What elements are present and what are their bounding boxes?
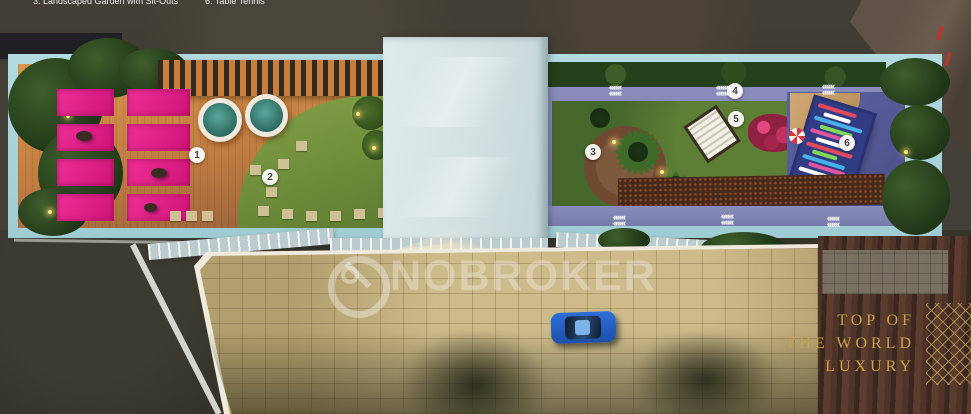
play-pinwheel [789, 128, 805, 144]
garden-light [356, 112, 360, 116]
track-chevron-icon: «««««« [827, 215, 839, 227]
palm-core [628, 142, 648, 162]
sitout-mat [127, 89, 190, 116]
tagline-line: LUXURY [700, 355, 915, 378]
tagline-line: THE WORLD [700, 332, 915, 355]
garden-light [48, 210, 52, 214]
stepping-stone [186, 211, 197, 221]
pergola [158, 60, 392, 96]
daybed-chair [198, 98, 242, 142]
amenity-marker-1: 1 [189, 147, 205, 163]
car-roof [575, 320, 591, 336]
roof-highlight [383, 57, 548, 127]
right-tree-cluster [852, 50, 952, 235]
stepping-stone [250, 165, 261, 175]
legend-item: 3. Landscaped Garden with Sit-Outs [33, 0, 178, 6]
tagline-line: TOP OF [700, 309, 915, 332]
amenity-marker-5: 5 [728, 111, 744, 127]
adjacent-walkway [822, 250, 948, 294]
watermark-brand: NOBROKER [390, 252, 657, 301]
garden-light [612, 140, 616, 144]
nobroker-logo-key-icon [328, 256, 390, 318]
stepping-stone [202, 211, 213, 221]
tagline: TOP OFTHE WORLDLUXURY [700, 309, 915, 378]
person-lounging [76, 131, 92, 141]
sitout-mat [57, 194, 114, 221]
palm-core [590, 108, 610, 128]
garden-light [660, 170, 664, 174]
person-lounging [144, 203, 157, 212]
track-chevron-icon: «««««« [609, 84, 621, 96]
building-roof [383, 37, 548, 244]
sitout-mat [57, 89, 114, 116]
garden-light [372, 146, 376, 150]
amenity-marker-3: 3 [585, 144, 601, 160]
tree-icon [882, 160, 950, 235]
garden-light [904, 150, 908, 154]
tree-icon [890, 105, 950, 160]
gravel-mat [618, 174, 886, 210]
stepping-stone [354, 209, 365, 219]
gold-lattice-pattern [926, 303, 971, 385]
stepping-stone [258, 206, 269, 216]
track-chevron-icon: «««««« [613, 214, 625, 226]
track-chevron-icon: «««««« [822, 83, 834, 95]
stepping-stone [330, 211, 341, 221]
daybed-chair [245, 94, 288, 137]
amenity-marker-4: 4 [727, 83, 743, 99]
roof-highlight [383, 157, 548, 217]
sitout-mat [127, 124, 190, 151]
track-chevron-icon: «««««« [721, 213, 733, 225]
sitout-mat [57, 159, 114, 186]
stepping-stone [282, 209, 293, 219]
track-chevron-icon: «««««« [716, 84, 728, 96]
rooftop-amenity-plan: NOBROKER TOP OFTHE WORLDLUXURY 123456 ««… [0, 0, 971, 414]
legend-item: 6. Table Tennis [205, 0, 265, 6]
stepping-stone [306, 211, 317, 221]
amenity-marker-2: 2 [262, 169, 278, 185]
car [550, 311, 616, 344]
stepping-stone [170, 211, 181, 221]
amenity-marker-6: 6 [839, 135, 855, 151]
stepping-stone [296, 141, 307, 151]
stepping-stone [266, 187, 277, 197]
tree-icon [880, 58, 950, 106]
stepping-stone [278, 159, 289, 169]
person-lounging [151, 168, 167, 178]
